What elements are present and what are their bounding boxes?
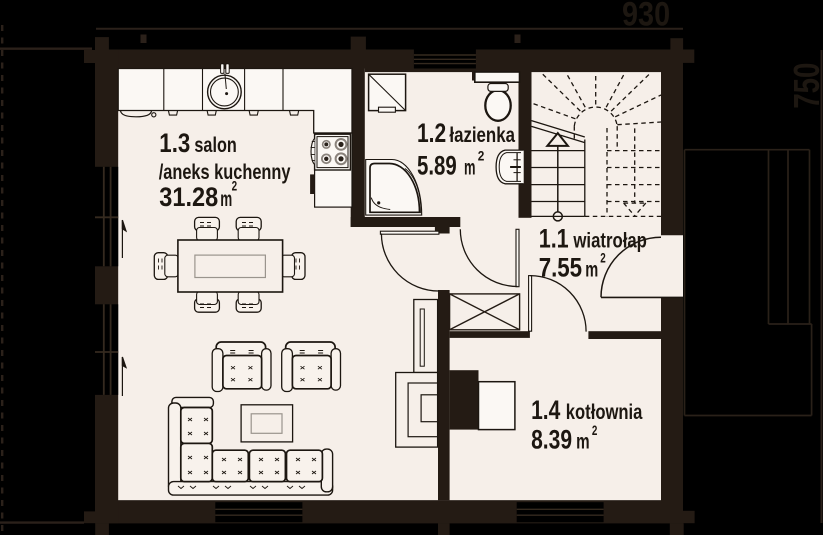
svg-text:2: 2 (478, 147, 485, 163)
svg-text:kotłownia: kotłownia (566, 400, 643, 424)
svg-text:5.89: 5.89 (417, 151, 457, 181)
svg-text:łazienka: łazienka (449, 123, 515, 147)
svg-text:31.28: 31.28 (159, 182, 218, 212)
svg-text:7.55: 7.55 (539, 253, 582, 283)
svg-text:1.4: 1.4 (531, 395, 560, 425)
svg-text:m: m (585, 258, 598, 282)
svg-text:/aneks kuchenny: /aneks kuchenny (159, 160, 291, 184)
svg-text:1.3: 1.3 (159, 128, 190, 158)
svg-text:2: 2 (592, 422, 598, 438)
svg-text:8.39: 8.39 (531, 425, 572, 455)
svg-text:930: 930 (622, 0, 670, 34)
svg-text:2: 2 (600, 249, 606, 265)
svg-text:m: m (576, 430, 590, 454)
svg-text:m: m (464, 156, 476, 180)
svg-text:2: 2 (232, 177, 238, 193)
svg-text:wiatrołap: wiatrołap (573, 228, 647, 252)
svg-text:1.1: 1.1 (539, 223, 569, 253)
svg-text:1.2: 1.2 (417, 118, 446, 148)
svg-text:m: m (220, 187, 232, 211)
svg-text:750: 750 (786, 63, 823, 109)
svg-text:salon: salon (194, 133, 236, 157)
